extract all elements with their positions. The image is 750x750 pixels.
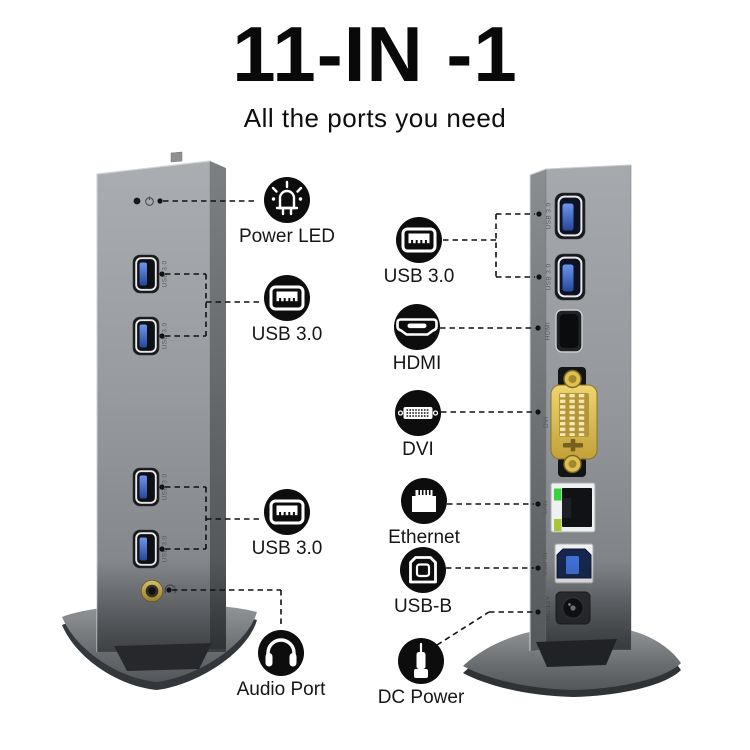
- usb-a-icon: [264, 489, 310, 535]
- callout-label: Power LED: [239, 226, 335, 248]
- callout-dvi: DVI: [348, 390, 488, 461]
- callout-dc-power: DC Power: [351, 638, 491, 709]
- back-usb-port-1: [555, 193, 585, 239]
- hdmi-port: [556, 310, 582, 352]
- back-usb-port-2: [555, 254, 585, 300]
- callout-audio-port: Audio Port: [211, 630, 351, 701]
- callout-label: Audio Port: [237, 679, 326, 701]
- ethernet-icon: [401, 478, 447, 524]
- back-port-label-hdmi: HDMI: [545, 322, 552, 340]
- dvi-icon: [395, 390, 441, 436]
- back-port-label-usb1: USB 3.0: [546, 202, 553, 229]
- front-stand-joint: [114, 643, 212, 671]
- callout-usb-back: USB 3.0: [349, 217, 489, 288]
- front-usb-port-1: [133, 255, 159, 293]
- callout-label: DVI: [402, 439, 434, 461]
- dc-power-icon: [398, 638, 444, 684]
- ethernet-port: [551, 483, 595, 532]
- product-diagram: 11-IN -1 All the ports you need: [0, 0, 750, 750]
- hdmi-icon: [394, 304, 440, 350]
- callout-usb-front-top: USB 3.0: [217, 275, 357, 346]
- callout-hdmi: HDMI: [347, 304, 487, 375]
- callout-label: DC Power: [378, 687, 465, 709]
- back-port-label-dvi: DVI: [543, 416, 550, 428]
- callout-label: HDMI: [393, 353, 442, 375]
- callout-label: USB-B: [394, 596, 452, 618]
- callout-ethernet: Ethernet: [354, 478, 494, 549]
- callout-usb-b: USB-B: [353, 547, 493, 618]
- back-stand-joint: [536, 639, 617, 667]
- front-usb-port-2: [133, 317, 159, 355]
- headphones-icon: [258, 630, 304, 676]
- callout-power-led: Power LED: [217, 177, 357, 248]
- back-port-label-lan: LAN: [542, 500, 549, 514]
- usb-a-icon: [396, 217, 442, 263]
- callout-label: USB 3.0: [384, 266, 455, 288]
- callout-label: Ethernet: [388, 527, 460, 549]
- power-led-icon: [264, 177, 310, 223]
- front-usb-port-3: [133, 468, 159, 506]
- callout-label: USB 3.0: [252, 324, 323, 346]
- callout-label: USB 3.0: [252, 538, 323, 560]
- usb-a-icon: [264, 275, 310, 321]
- back-port-label-usb2: USB 3.0: [546, 263, 553, 290]
- usb-b-icon: [400, 547, 446, 593]
- callout-usb-front-bottom: USB 3.0: [217, 489, 357, 560]
